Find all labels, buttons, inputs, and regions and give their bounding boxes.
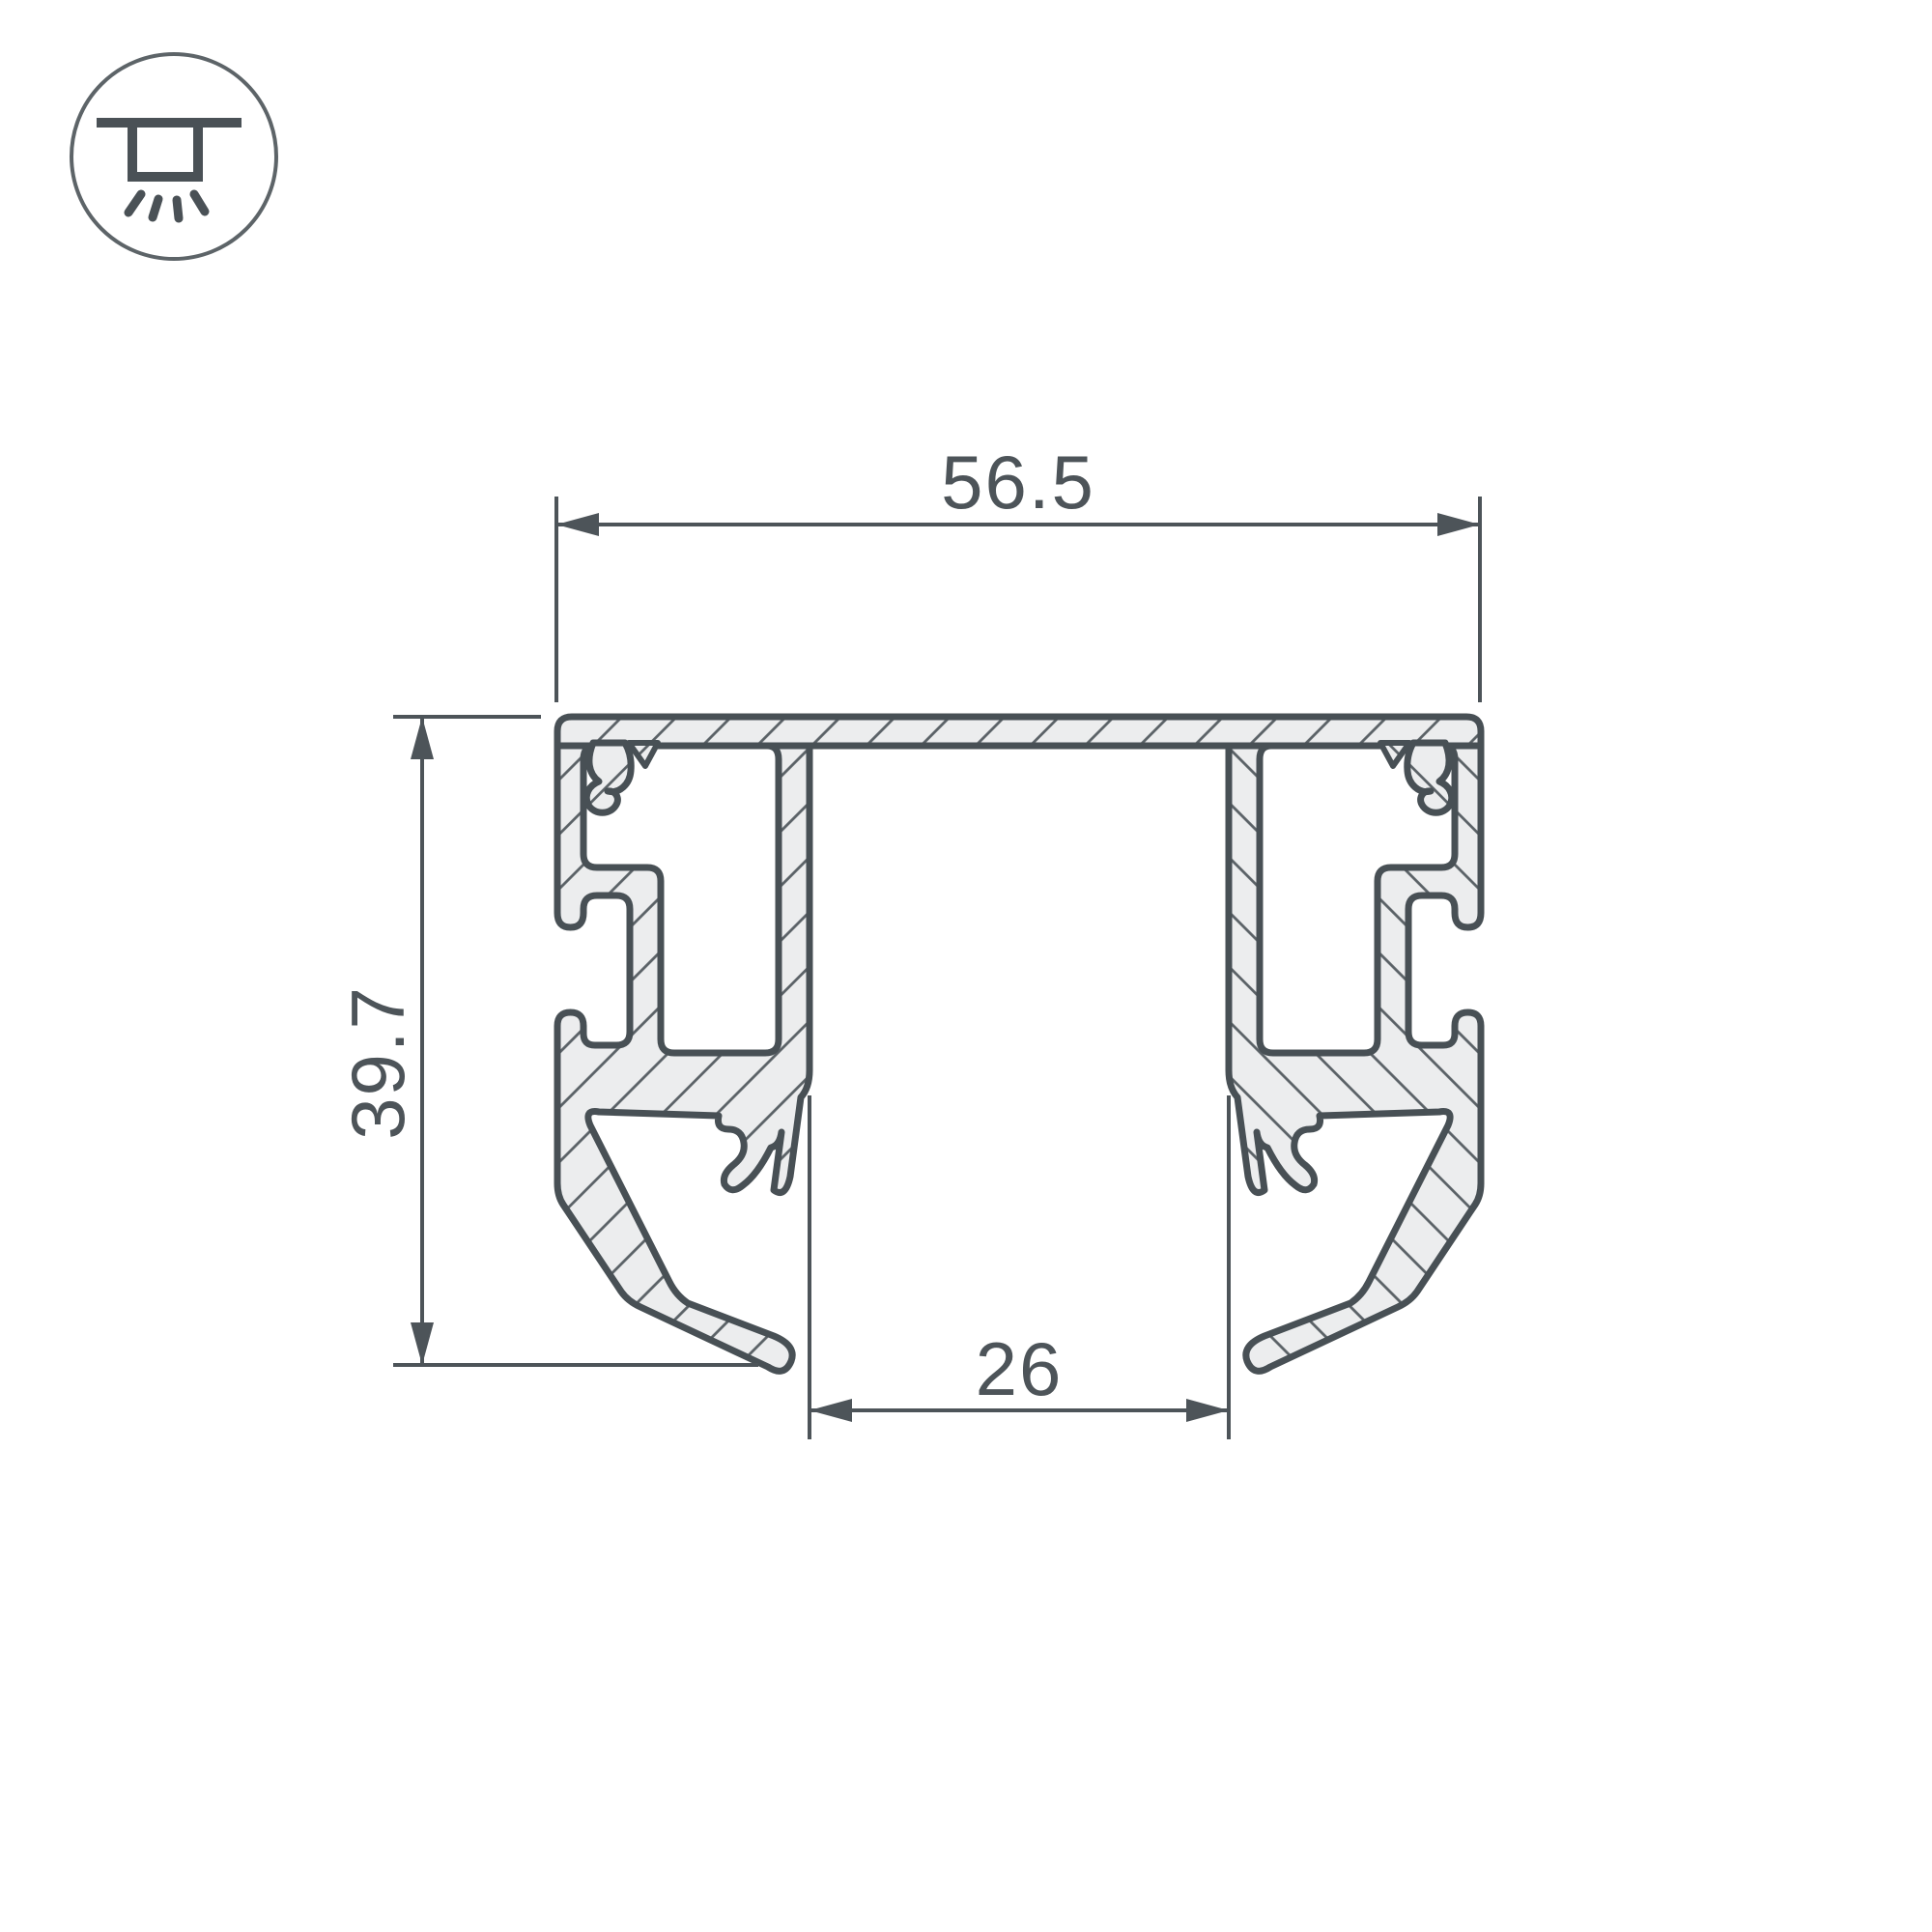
ceiling-recessed-light-icon — [71, 54, 276, 259]
arrowhead-up-icon — [411, 717, 434, 759]
arrowhead-left-icon — [810, 1399, 852, 1422]
dimension-label-channel: 26 — [976, 1326, 1064, 1411]
drawing-canvas: 56.5 39.7 26 — [0, 0, 1932, 1932]
profile-cross-section — [557, 717, 1481, 1371]
icon-fixture-box — [132, 123, 198, 177]
dimension-label-height: 39.7 — [335, 985, 420, 1140]
arrowhead-right-icon — [1186, 1399, 1229, 1422]
arrowhead-down-icon — [411, 1322, 434, 1365]
profile-right-assembly — [1229, 743, 1481, 1371]
profile-top-bar — [557, 717, 1481, 746]
arrowhead-right-icon — [1437, 513, 1480, 536]
icon-circle — [71, 54, 276, 259]
profile-drawing-svg: 56.5 39.7 26 — [0, 0, 1932, 1932]
dimension-label-width: 56.5 — [941, 440, 1095, 525]
arrowhead-left-icon — [556, 513, 599, 536]
icon-light-rays — [128, 194, 205, 218]
dimension-top-width — [556, 497, 1480, 702]
profile-left-assembly — [557, 743, 810, 1371]
